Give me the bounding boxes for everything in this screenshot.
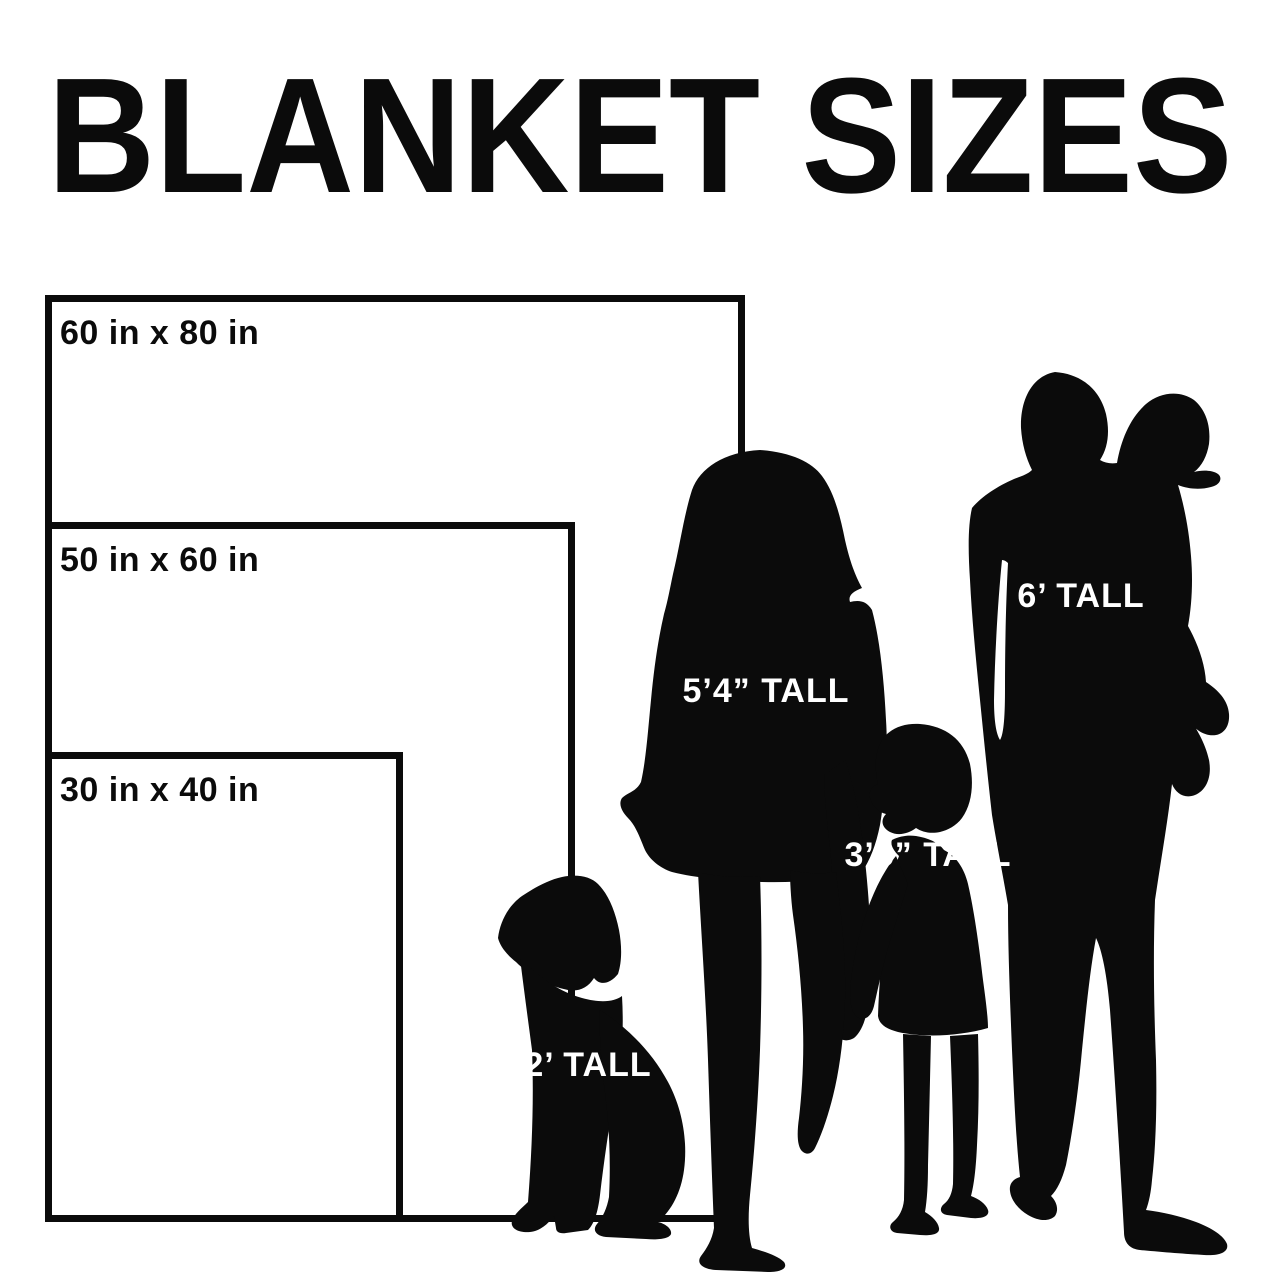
man-height-label: 6’ TALL (1017, 577, 1144, 616)
child-right-leg (941, 1034, 988, 1218)
child-height-label: 3’5” TALL (844, 836, 1011, 875)
dog-height-label: 2’ TALL (524, 1046, 651, 1085)
woman-back-leg (790, 870, 845, 1154)
blanket-sizes-infographic: BLANKET SIZES 60 in x 80 in 50 in x 60 i… (0, 0, 1280, 1280)
woman-height-label: 5’4” TALL (682, 672, 849, 711)
man-with-toddler-silhouette (969, 372, 1229, 1255)
dog-haunch (595, 1010, 685, 1239)
man-body (969, 372, 1229, 1255)
family-silhouettes (0, 0, 1280, 1280)
child-head (869, 724, 971, 834)
child-left-leg (890, 1034, 939, 1235)
dog-head (498, 876, 621, 991)
woman-front-leg (698, 872, 785, 1272)
